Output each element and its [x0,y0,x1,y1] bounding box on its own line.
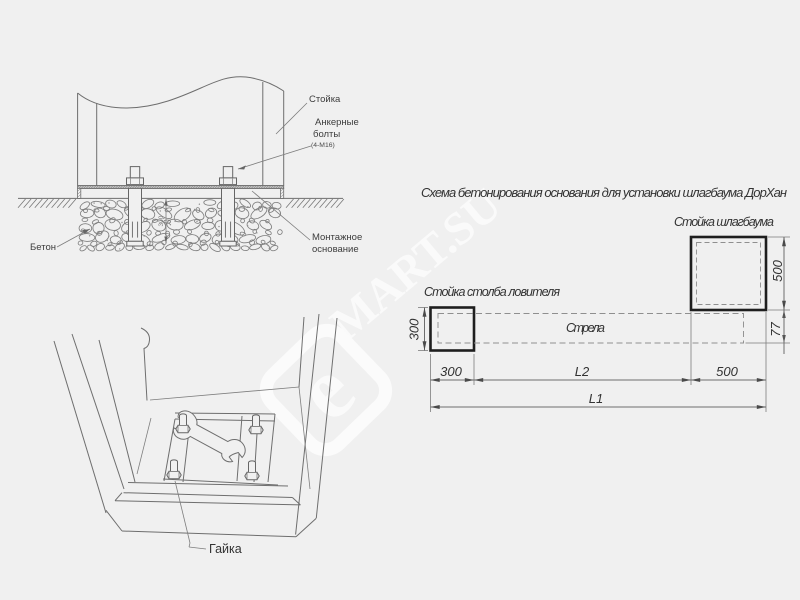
svg-text:77: 77 [768,322,783,337]
svg-text:(4-М16): (4-М16) [311,142,335,149]
svg-text:основание: основание [312,244,359,255]
svg-text:300: 300 [407,318,422,340]
svg-text:500: 500 [770,259,785,281]
svg-text:Стрела: Стрела [566,321,605,335]
svg-text:Гайка: Гайка [209,542,242,556]
svg-text:300: 300 [158,215,165,226]
svg-text:300: 300 [440,364,462,379]
svg-text:Стойка шлагбаума: Стойка шлагбаума [674,215,774,229]
svg-text:Монтажное: Монтажное [312,232,362,243]
svg-text:болты: болты [313,129,340,140]
svg-text:Схема бетонирования основания: Схема бетонирования основания для устано… [421,185,787,200]
svg-text:Бетон: Бетон [30,242,56,253]
svg-text:L2: L2 [575,364,590,379]
svg-text:Стойка: Стойка [309,94,341,105]
svg-text:Анкерные: Анкерные [315,117,359,128]
svg-text:L1: L1 [589,391,603,406]
svg-text:500: 500 [716,364,738,379]
svg-text:Стойка столба ловителя: Стойка столба ловителя [424,285,560,299]
